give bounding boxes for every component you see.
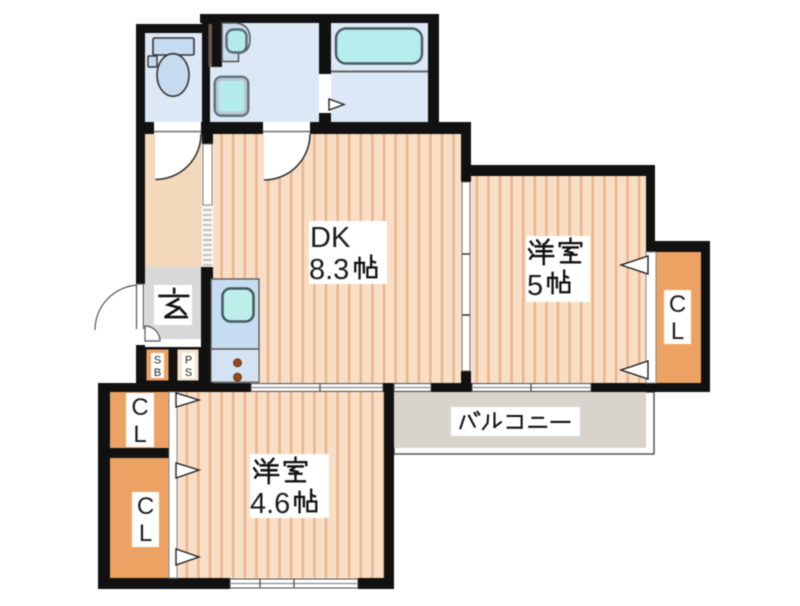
svg-text:L: L: [139, 520, 152, 547]
svg-text:L: L: [133, 421, 146, 448]
svg-text:DK: DK: [310, 222, 351, 254]
svg-text:4.6: 4.6: [250, 488, 290, 520]
svg-text:C: C: [137, 493, 154, 520]
svg-text:B: B: [154, 367, 161, 379]
svg-text:S: S: [154, 355, 161, 367]
svg-text:L: L: [671, 318, 684, 345]
svg-text:C: C: [131, 394, 148, 421]
svg-text:P: P: [185, 355, 192, 367]
svg-text:8.3: 8.3: [309, 254, 349, 286]
svg-text:S: S: [185, 367, 192, 379]
svg-text:C: C: [669, 291, 686, 318]
svg-text:5: 5: [527, 270, 543, 302]
